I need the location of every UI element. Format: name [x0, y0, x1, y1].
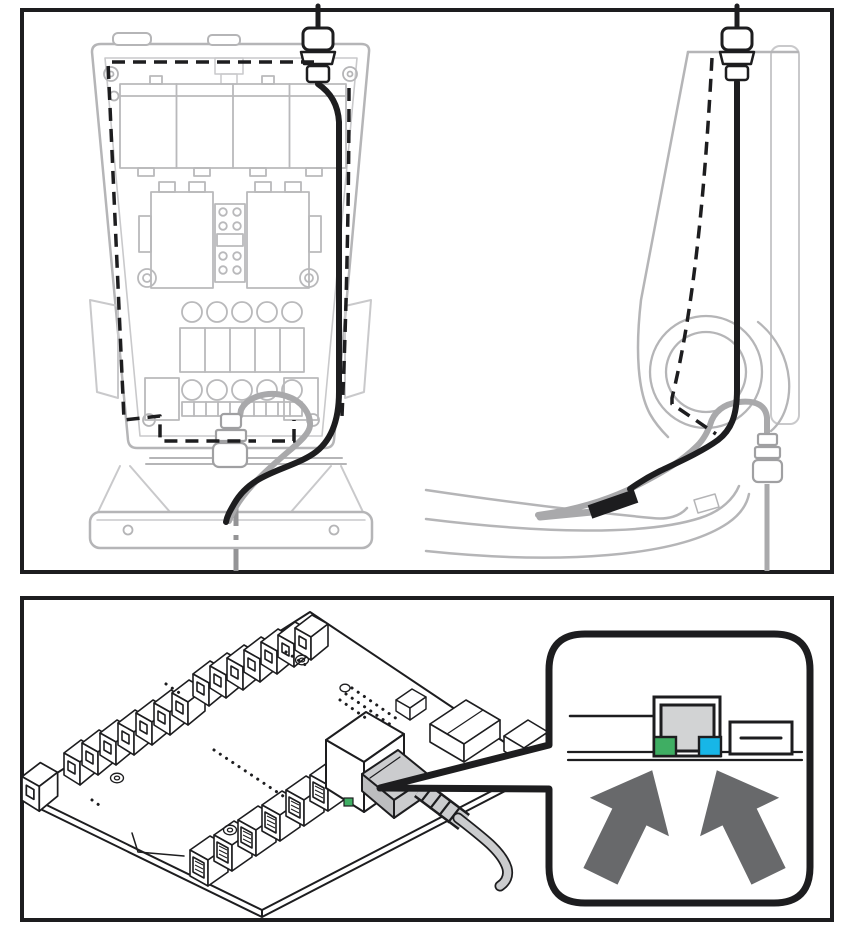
side-cable-gland-gray: [753, 434, 782, 482]
status-led-green: [654, 737, 676, 756]
installation-diagram-page: [0, 0, 850, 933]
diagram-figure: [0, 0, 850, 933]
cable-tail-gray: [540, 512, 592, 517]
panel-board-connection: [22, 598, 832, 920]
routing-panel-border: [22, 10, 832, 572]
jack-led-green: [344, 798, 353, 806]
status-led-blue: [699, 737, 721, 756]
panel-cable-routing: [22, 6, 832, 572]
